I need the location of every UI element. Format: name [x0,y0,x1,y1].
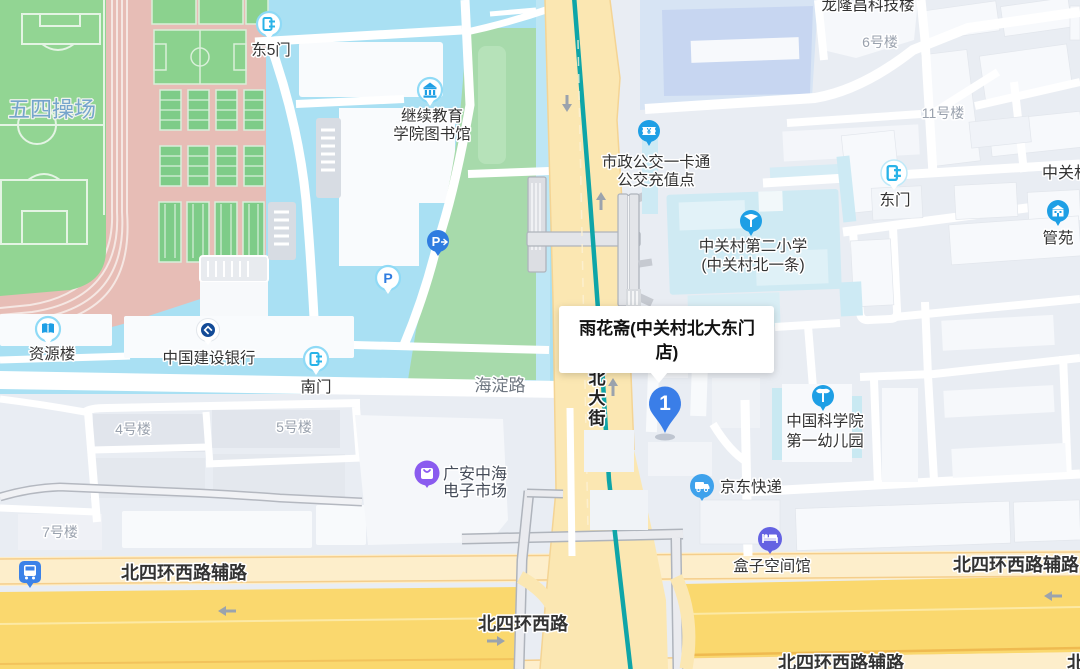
svg-text:4号楼: 4号楼 [115,421,151,437]
svg-text:5号楼: 5号楼 [276,419,312,435]
svg-text:中国科学院: 中国科学院 [786,411,864,430]
svg-text:(中关村北一条): (中关村北一条) [701,256,804,274]
svg-text:大: 大 [589,388,606,408]
svg-text:公交充值点: 公交充值点 [617,171,695,189]
svg-text:管苑: 管苑 [1042,229,1073,247]
svg-text:京东快递: 京东快递 [720,478,782,496]
svg-text:东5门: 东5门 [251,41,291,59]
svg-text:街: 街 [588,408,606,428]
svg-text:P: P [383,270,392,286]
svg-text:市政公交一卡通: 市政公交一卡通 [602,153,711,171]
svg-text:中关村: 中关村 [1042,164,1080,182]
svg-text:南门: 南门 [300,378,331,396]
svg-text:7号楼: 7号楼 [42,524,78,540]
svg-text:1: 1 [659,392,671,415]
svg-text:龙隆昌科技楼: 龙隆昌科技楼 [821,0,914,14]
svg-text:东门: 东门 [879,191,910,209]
svg-text:海淀路: 海淀路 [475,376,526,395]
svg-text:北四环西路辅路: 北四环西路辅路 [778,652,905,669]
svg-text:盒子空间馆: 盒子空间馆 [733,557,811,575]
svg-text:中关村第二小学: 中关村第二小学 [699,237,808,255]
svg-text:电子市场: 电子市场 [443,482,507,500]
svg-text:11号楼: 11号楼 [922,105,965,121]
svg-text:6号楼: 6号楼 [862,34,898,50]
svg-text:北四环西路辅路: 北四环西路辅路 [121,562,248,583]
svg-text:店): 店) [656,342,679,362]
svg-text:继续教育: 继续教育 [401,107,463,125]
svg-text:北四环西路: 北四环西路 [478,613,569,634]
svg-text:中国建设银行: 中国建设银行 [162,349,255,367]
svg-text:¥: ¥ [647,127,652,136]
svg-text:北: 北 [1067,653,1080,669]
svg-text:广安中海: 广安中海 [443,465,507,483]
svg-text:学院图书馆: 学院图书馆 [393,124,471,143]
svg-text:雨花斋(中关村北大东门: 雨花斋(中关村北大东门 [579,318,755,338]
svg-text:资源楼: 资源楼 [29,345,76,363]
svg-text:P: P [432,234,441,249]
svg-text:第一幼儿园: 第一幼儿园 [786,432,864,450]
svg-text:北四环西路辅路: 北四环西路辅路 [953,554,1080,575]
svg-text:五四操场: 五四操场 [8,97,96,122]
